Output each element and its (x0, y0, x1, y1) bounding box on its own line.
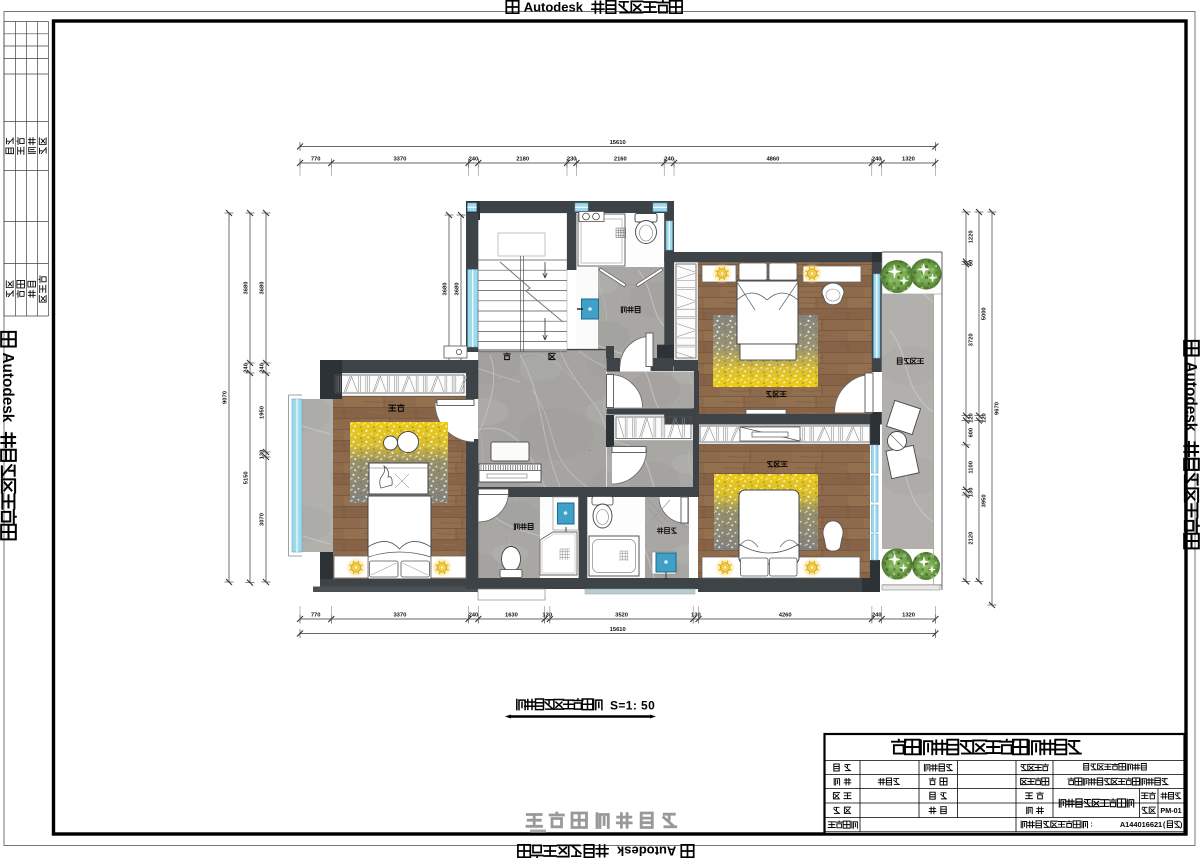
svg-text:S=1: 50: S=1: 50 (610, 699, 655, 713)
svg-text:9670: 9670 (995, 402, 1001, 415)
svg-text:770: 770 (311, 613, 321, 619)
svg-text:120: 120 (982, 413, 988, 423)
svg-text:Autodesk: Autodesk (1182, 361, 1199, 431)
svg-text:1950: 1950 (260, 406, 266, 419)
svg-text:PM-01: PM-01 (1160, 806, 1181, 815)
svg-text:1320: 1320 (902, 613, 915, 619)
svg-text:240: 240 (664, 157, 674, 163)
svg-text:2180: 2180 (516, 157, 529, 163)
svg-text:230: 230 (567, 157, 577, 163)
svg-text::: : (1091, 822, 1093, 829)
svg-text:Autodesk: Autodesk (0, 352, 16, 422)
svg-text:3680: 3680 (455, 283, 461, 296)
svg-text:2120: 2120 (969, 532, 975, 545)
svg-text:3070: 3070 (260, 513, 266, 526)
svg-text:4260: 4260 (779, 613, 792, 619)
svg-text:3520: 3520 (615, 613, 628, 619)
svg-text:60: 60 (969, 260, 975, 266)
svg-text:240: 240 (872, 613, 882, 619)
svg-text:130: 130 (542, 613, 552, 619)
svg-text:5150: 5150 (244, 471, 250, 484)
svg-text:600: 600 (969, 428, 975, 438)
svg-text:15610: 15610 (610, 627, 626, 633)
svg-text:3720: 3720 (969, 333, 975, 346)
svg-text:130: 130 (260, 450, 266, 460)
svg-text:5000: 5000 (982, 307, 988, 320)
svg-text:3370: 3370 (393, 613, 406, 619)
svg-text:9070: 9070 (223, 391, 229, 404)
svg-text:770: 770 (311, 157, 321, 163)
svg-text:240: 240 (469, 157, 479, 163)
svg-text:15610: 15610 (610, 140, 626, 146)
svg-text:Autodesk: Autodesk (524, 0, 584, 15)
svg-text:130: 130 (691, 613, 701, 619)
svg-text:A144016621: A144016621 (1120, 820, 1162, 829)
svg-text:): ) (1180, 822, 1182, 829)
svg-text:3950: 3950 (982, 494, 988, 507)
svg-text:240: 240 (469, 613, 479, 619)
svg-text:240: 240 (244, 363, 250, 373)
svg-text:240: 240 (872, 157, 882, 163)
svg-text:3680: 3680 (260, 282, 266, 295)
svg-text:240: 240 (260, 363, 266, 373)
svg-text:3680: 3680 (244, 282, 250, 295)
svg-text:3370: 3370 (393, 157, 406, 163)
svg-text:3680: 3680 (443, 283, 449, 296)
svg-text:1630: 1630 (505, 613, 518, 619)
svg-text:1220: 1220 (969, 230, 975, 243)
svg-text:1100: 1100 (969, 461, 975, 474)
svg-text:2160: 2160 (614, 157, 627, 163)
svg-text:1320: 1320 (902, 157, 915, 163)
svg-text:120: 120 (969, 413, 975, 423)
svg-text:Autodesk: Autodesk (616, 843, 676, 858)
svg-text:130: 130 (969, 488, 975, 498)
svg-text:4860: 4860 (766, 157, 779, 163)
